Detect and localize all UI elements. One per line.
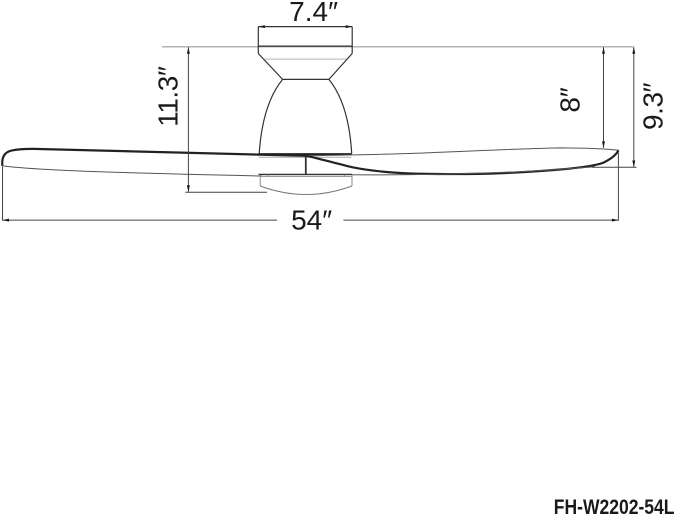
svg-text:54″: 54″ [291,205,332,236]
svg-text:11.3″: 11.3″ [153,66,184,127]
svg-text:8″: 8″ [555,87,586,113]
svg-text:9.3″: 9.3″ [638,82,669,130]
svg-text:7.4″: 7.4″ [289,0,338,27]
svg-text:FH-W2202-54L: FH-W2202-54L [554,495,675,517]
